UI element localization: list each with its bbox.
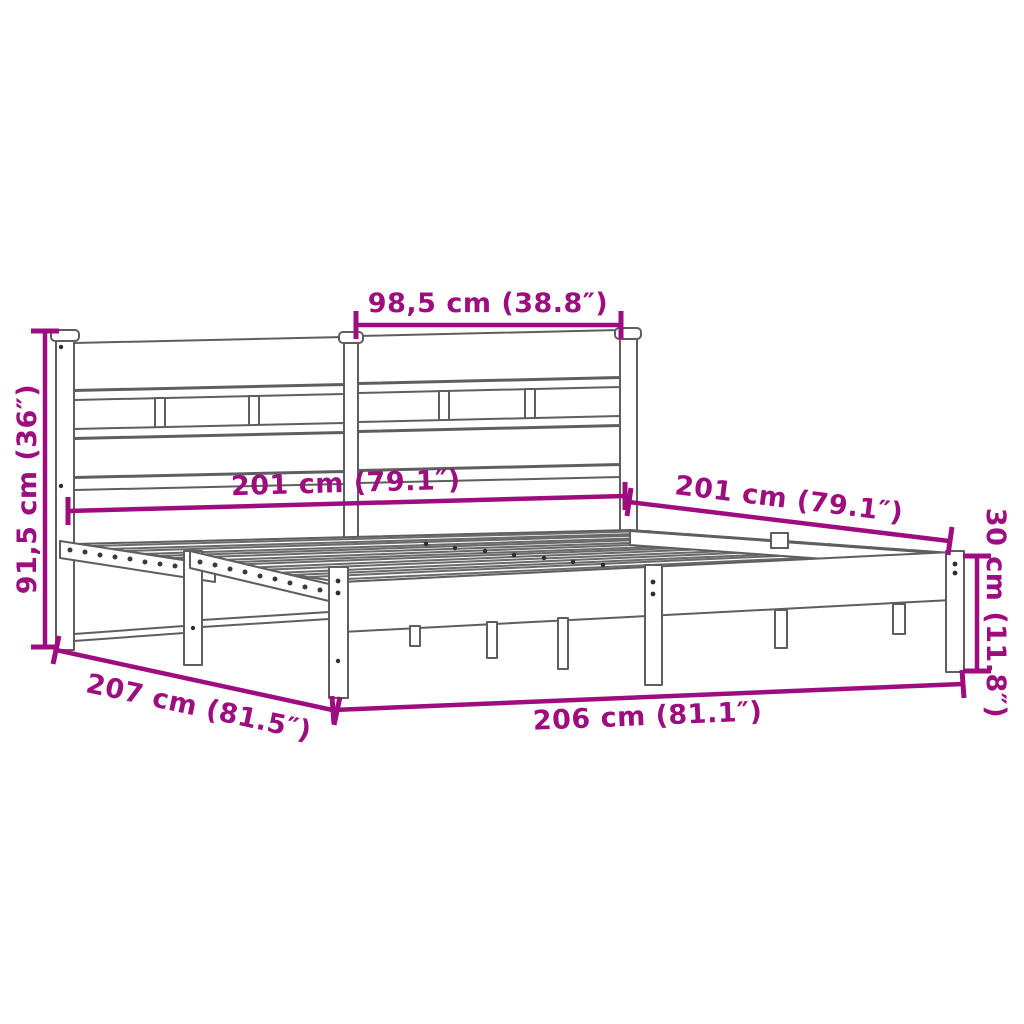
headboard-spacer-left-2 (249, 396, 259, 427)
lower-brace-left-2 (202, 612, 329, 627)
headboard-top-board-left (74, 337, 344, 390)
leg-front-left (329, 567, 348, 698)
headboard-spacer-left-1 (155, 398, 165, 429)
dimension-diagram: 98,5 cm (38.8″) 91,5 cm (36″) 201 cm (79… (0, 0, 1024, 1024)
dim-headboard-section-width-label: 98,5 cm (38.8″) (368, 288, 608, 319)
headboard-top-board-right (358, 330, 620, 383)
dim-width-inner-label: 201 cm (79.1″) (231, 465, 461, 502)
headboard-post-middle-cap (339, 332, 363, 343)
headboard-spacer-right-1 (439, 391, 449, 422)
lower-brace-left-1 (74, 626, 184, 641)
leg-back-1 (410, 626, 420, 646)
leg-back-2 (487, 622, 497, 658)
headboard-post-left (56, 336, 74, 650)
screw-dot (191, 626, 195, 630)
slat-bracket (771, 533, 788, 548)
headboard-post-middle (344, 338, 358, 542)
leg-front-right-corner (946, 551, 964, 672)
dim-frame-height-label: 30 cm (11.8″) (980, 508, 1011, 718)
headboard-spacer-right-2 (525, 389, 535, 420)
diagram-canvas: 98,5 cm (38.8″) 91,5 cm (36″) 201 cm (79… (0, 0, 1024, 1024)
leg-back-3 (558, 618, 568, 669)
leg-back-4 (775, 610, 787, 648)
headboard-bottom-board-right (358, 426, 620, 470)
dim-frame-height: 30 cm (11.8″) (963, 508, 1011, 718)
leg-back-5 (893, 604, 905, 634)
screw-dot (59, 484, 63, 488)
screw-dot (59, 345, 63, 349)
dim-headboard-height: 91,5 cm (36″) (12, 331, 59, 647)
dim-headboard-height-label: 91,5 cm (36″) (12, 384, 43, 594)
